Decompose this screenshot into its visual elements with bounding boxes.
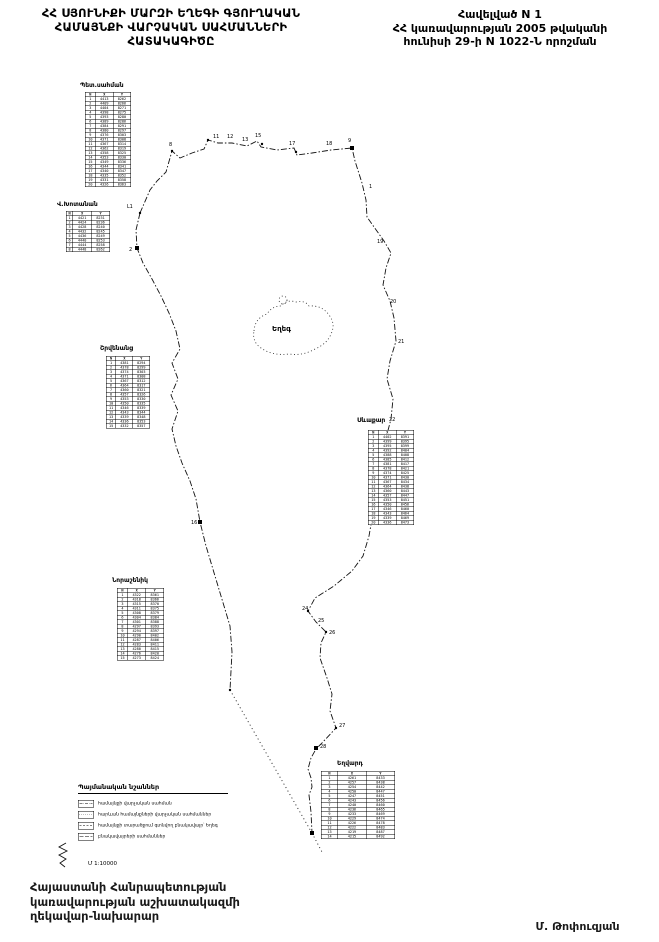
boundary-marker-square bbox=[314, 746, 318, 750]
coord-table-sevakar: NXY1440283912439983953439583994439284045… bbox=[368, 430, 414, 525]
boundary-point-label-27: 27 bbox=[339, 723, 345, 729]
coord-cell: 8262 bbox=[91, 247, 109, 252]
boundary-point-label-17: 17 bbox=[289, 141, 295, 147]
boundary-point-label-18: 18 bbox=[326, 141, 332, 147]
signature: Մ. Թոփուզյան bbox=[505, 920, 650, 933]
footer-issuer-line-3: ղեկավար-նախարար bbox=[30, 909, 240, 924]
boundary-markers bbox=[135, 139, 354, 835]
legend-item-label: հարևան համայնքների վարչական սահմաններ bbox=[98, 812, 211, 817]
coord-cell: 8363 bbox=[113, 182, 131, 187]
legend-title: Պայմանական նշաններ bbox=[78, 783, 228, 794]
coord-table-row: 1543328357 bbox=[106, 424, 150, 429]
footer-issuer-line-1: Հայաստանի Հանրապետության bbox=[30, 880, 240, 895]
boundary-point-label-Լ1: Լ1 bbox=[127, 204, 133, 210]
coord-cell: 15 bbox=[117, 656, 127, 661]
coord-cell: 20 bbox=[85, 182, 95, 187]
table-label-v-khotanan: Վ.Խոտանան bbox=[57, 201, 98, 208]
boundary-marker-dot bbox=[325, 631, 327, 633]
legend-symbol-longdash bbox=[78, 833, 94, 841]
boundary-marker-dot bbox=[295, 151, 297, 153]
coord-cell: 8 bbox=[66, 247, 73, 252]
table-label-norashenik: Նորաշենիկ bbox=[112, 577, 148, 584]
coord-cell: 8473 bbox=[396, 520, 414, 525]
legend-item-3: համայնքի տարածքում գտնվող բնակավայր՝ Եղե… bbox=[78, 820, 293, 831]
table-label-pet-sahman: Պետ.սահման bbox=[80, 82, 124, 89]
coord-cell: 4336 bbox=[378, 520, 396, 525]
coord-table-row: 1442158492 bbox=[321, 834, 395, 839]
boundary-marker-dot bbox=[139, 212, 141, 214]
legend-item-label: համայնքի տարածքում գտնվող բնակավայր՝ Եղե… bbox=[98, 823, 218, 828]
coord-cell: 14 bbox=[321, 834, 337, 839]
boundary-marker-square bbox=[198, 520, 202, 524]
coord-cell: 8357 bbox=[133, 424, 150, 429]
coord-table-row: 2043268363 bbox=[85, 182, 131, 187]
scale-label: Մ 1:10000 bbox=[88, 861, 117, 867]
coord-table-row: 2043368473 bbox=[368, 520, 414, 525]
coord-table-shrvenants: NXY1438182942437882993437483034437183085… bbox=[106, 356, 150, 429]
boundary-point-label-2: 2 bbox=[129, 247, 132, 253]
table-label-sevakar: Սևաքար bbox=[357, 417, 385, 424]
map-sheet: ՀՀ ՍՅՈՒՆԻՔԻ ՄԱՐԶԻ ԵՂԵԳԻ ԳՅՈՒՂԱԿԱՆ ՀԱՄԱՅՆ… bbox=[0, 0, 659, 942]
legend-symbol-dashdot bbox=[78, 800, 94, 808]
legend-item-2: հարևան համայնքների վարչական սահմաններ bbox=[78, 809, 293, 820]
legend-item-label: համայնքի վարչական սահման bbox=[98, 801, 172, 806]
boundary-marker-dot bbox=[207, 139, 209, 141]
coord-cell: 8424 bbox=[146, 656, 164, 661]
coord-table-yeghvard: NXY1426184332425784383425484424425084475… bbox=[321, 771, 395, 839]
boundary-point-label-21: 21 bbox=[398, 339, 404, 345]
village-name-label: Եղեգ bbox=[272, 325, 291, 333]
coord-table-row: 844488262 bbox=[66, 247, 110, 252]
coord-table-v-khotanan: NXY1442182312442482363442882404443282455… bbox=[66, 211, 110, 252]
boundary-point-label-20: 20 bbox=[390, 299, 396, 305]
boundary-point-label-9: 9 bbox=[348, 138, 351, 144]
coord-cell: 8492 bbox=[366, 834, 395, 839]
table-label-yeghvard: Եղվարդ bbox=[337, 760, 363, 767]
boundary-point-label-26: 26 bbox=[329, 630, 335, 636]
coord-table-row: 1542738424 bbox=[117, 656, 164, 661]
boundary-marker-square bbox=[350, 146, 354, 150]
legend: Պայմանական նշաններ համայնքի վարչական սահ… bbox=[78, 783, 293, 886]
boundary-point-label-19: 19 bbox=[377, 239, 383, 245]
coord-cell: 15 bbox=[106, 424, 116, 429]
coord-cell: 4326 bbox=[95, 182, 113, 187]
boundary-point-label-22: 22 bbox=[389, 417, 395, 423]
coord-table-norashenik: NXY1432283612431883663431583704431183755… bbox=[117, 588, 164, 661]
footer-issuer: Հայաստանի Հանրապետության կառավարության ա… bbox=[30, 880, 240, 924]
boundary-marker-dot bbox=[261, 143, 263, 145]
boundary-point-label-16: 16 bbox=[191, 520, 197, 526]
coord-cell: 4215 bbox=[338, 834, 367, 839]
boundary-point-label-15: 15 bbox=[255, 133, 261, 139]
village-outline-bump bbox=[279, 296, 287, 304]
legend-symbol-dots bbox=[78, 811, 94, 819]
legend-item-4: բնակավայրերի սահմաններ bbox=[78, 831, 293, 842]
scale-squiggle bbox=[59, 843, 67, 867]
boundary-point-label-25: 25 bbox=[318, 618, 324, 624]
boundary-point-labels: Լ128111213151718911920212223162425262728 bbox=[127, 133, 404, 750]
footer-issuer-line-2: կառավարության աշխատակազմի bbox=[30, 895, 240, 910]
boundary-point-label-1: 1 bbox=[369, 184, 372, 190]
village-outline bbox=[254, 301, 333, 354]
boundary-point-label-28: 28 bbox=[320, 744, 326, 750]
coord-cell: 4448 bbox=[73, 247, 91, 252]
boundary-marker-dot bbox=[171, 150, 173, 152]
boundary-point-label-11: 11 bbox=[213, 134, 219, 140]
boundary-point-label-13: 13 bbox=[242, 137, 248, 143]
boundary-point-label-12: 12 bbox=[227, 134, 233, 140]
legend-symbol-dash bbox=[78, 822, 94, 830]
boundary-marker-square bbox=[135, 246, 139, 250]
table-label-shrvenants: Շրվենանց bbox=[100, 345, 133, 352]
legend-item-1: համայնքի վարչական սահման bbox=[78, 798, 293, 809]
coord-table-pet-sahman: NXY1441382622440982663440482714439882755… bbox=[85, 92, 131, 187]
boundary-marker-square bbox=[310, 831, 314, 835]
boundary-marker-dot bbox=[229, 689, 231, 691]
boundary-point-label-24: 24 bbox=[302, 606, 308, 612]
coord-cell: 4273 bbox=[128, 656, 146, 661]
legend-items: համայնքի վարչական սահմանհարևան համայնքնե… bbox=[78, 798, 293, 842]
boundary-point-label-8: 8 bbox=[169, 142, 172, 148]
boundary-marker-dot bbox=[335, 727, 337, 729]
coord-cell: 20 bbox=[368, 520, 378, 525]
legend-item-label: բնակավայրերի սահմաններ bbox=[98, 834, 165, 839]
community-boundary-east bbox=[140, 140, 396, 833]
coord-cell: 4332 bbox=[116, 424, 133, 429]
